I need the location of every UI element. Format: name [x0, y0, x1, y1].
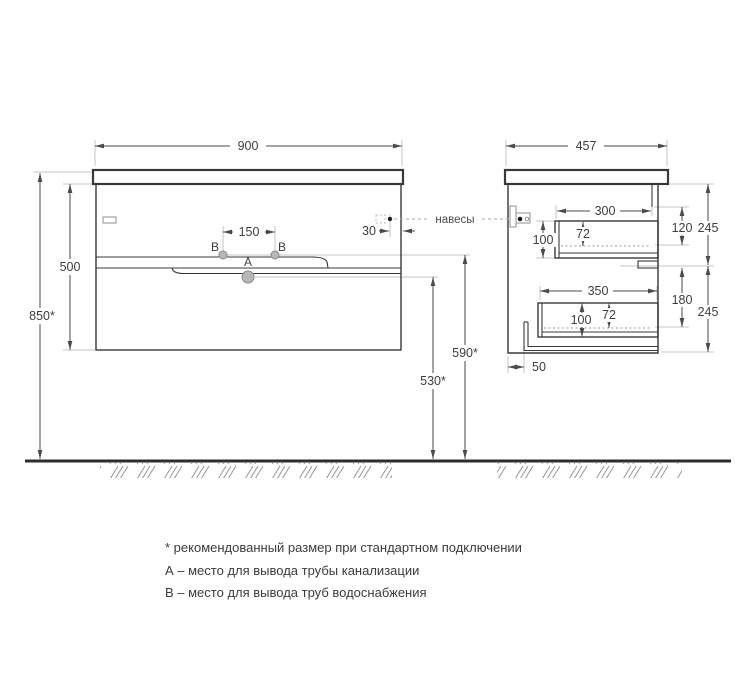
dim-bottom-drawer-inner-72: 72: [602, 308, 616, 322]
dim-top-drawer-height-100: 100: [533, 233, 554, 247]
dim-water-height-590: 590*: [452, 346, 478, 360]
dim-bottom-drawer-width-350: 350: [588, 284, 609, 298]
dim-back-clearance-50: 50: [532, 360, 546, 374]
dim-top-drawer-inner-72: 72: [576, 227, 590, 241]
dim-hanger-offset-30: 30: [362, 224, 376, 238]
hangers-label: навесы: [435, 214, 474, 226]
dim-depth-457: 457: [576, 139, 597, 153]
hanger-point-front-right: [388, 217, 392, 221]
drain-point: [242, 271, 254, 283]
side-countertop: [505, 170, 668, 184]
footnotes: * рекомендованный размер при стандартном…: [165, 537, 522, 605]
dim-bottom-section-245: 245: [698, 305, 719, 319]
dim-drain-height-530: 530*: [420, 374, 446, 388]
dim-total-height-850: 850*: [29, 309, 55, 323]
footnote-drain: А – место для вывода трубы канализации: [165, 560, 522, 583]
dim-faucet-spacing-150: 150: [239, 225, 260, 239]
front-bottom-drawer-edge: [172, 268, 401, 274]
dim-width-900: 900: [238, 139, 259, 153]
floor-hatch-right: [497, 463, 682, 478]
label-b-left: В: [211, 240, 219, 254]
floor: [25, 461, 731, 478]
front-top-drawer-edge: [96, 257, 328, 268]
front-countertop: [93, 170, 403, 184]
label-b-right: В: [278, 240, 286, 254]
hanger-icon-front-left: [103, 217, 116, 223]
dim-top-front-120: 120: [672, 221, 693, 235]
footnote-water-supply: В – место для вывода труб водоснабжения: [165, 582, 522, 605]
label-a: А: [244, 255, 252, 269]
dim-top-drawer-width-300: 300: [595, 204, 616, 218]
floor-hatch-left: [100, 463, 392, 478]
dim-top-section-245: 245: [698, 221, 719, 235]
dim-bottom-drawer-height-100: 100: [571, 313, 592, 327]
side-drawer-gap-step: [638, 261, 658, 268]
hanger-zone-front-right: [376, 215, 385, 223]
water-supply-point-left: [219, 251, 227, 259]
dim-height-500: 500: [60, 260, 81, 274]
hanger-icon-side: [510, 206, 530, 227]
footnote-recommended-size: * рекомендованный размер при стандартном…: [165, 537, 522, 560]
dim-bottom-front-180: 180: [672, 293, 693, 307]
